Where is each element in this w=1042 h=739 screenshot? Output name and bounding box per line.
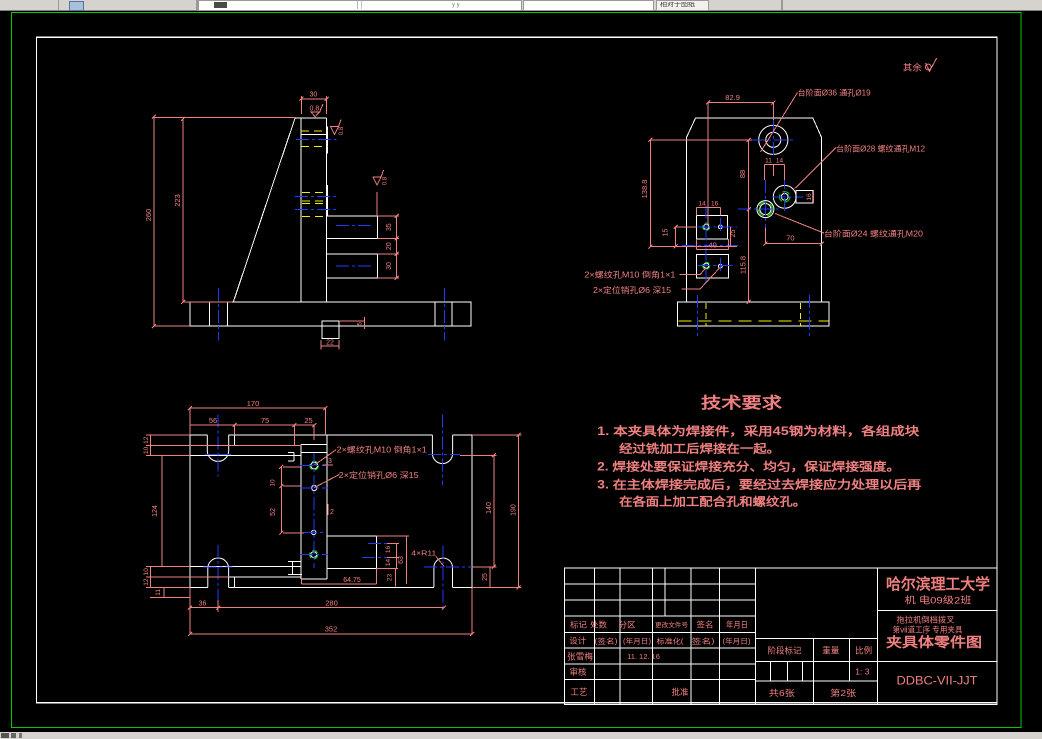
svg-text:5: 5 [358, 321, 364, 325]
svg-text:(年月日): (年月日) [623, 636, 651, 645]
svg-text:夹具体零件图: 夹具体零件图 [886, 634, 982, 650]
svg-text:工艺: 工艺 [571, 687, 588, 697]
svg-text:第2张: 第2张 [830, 688, 857, 698]
svg-text:82.9: 82.9 [725, 93, 740, 102]
svg-text:14: 14 [776, 158, 784, 165]
svg-text:0.8: 0.8 [339, 126, 345, 135]
svg-text:40: 40 [709, 241, 717, 250]
svg-text:拖拉机倒档拨叉: 拖拉机倒档拨叉 [897, 614, 955, 624]
svg-text:280: 280 [325, 599, 338, 608]
svg-text:64.75: 64.75 [343, 577, 361, 584]
svg-text:23: 23 [387, 574, 394, 582]
svg-text:签名): 签名) [692, 636, 715, 645]
svg-text:2×定位销孔Ø6 深15: 2×定位销孔Ø6 深15 [339, 470, 420, 480]
svg-text:70: 70 [786, 234, 794, 243]
svg-text:11. 12. 16: 11. 12. 16 [627, 652, 660, 661]
svg-text:年月日: 年月日 [726, 620, 748, 630]
svg-text:10: 10 [143, 446, 150, 454]
svg-text:260: 260 [144, 209, 153, 222]
svg-text:分区: 分区 [619, 621, 636, 630]
svg-text:190: 190 [511, 504, 518, 516]
svg-text:11: 11 [155, 589, 162, 596]
svg-text:56: 56 [209, 416, 217, 425]
svg-text:机 电09级2班: 机 电09级2班 [905, 595, 973, 607]
svg-text:12: 12 [143, 578, 150, 586]
svg-text:签名: 签名 [697, 620, 714, 630]
svg-text:第ⅶ道工序 专用夹具: 第ⅶ道工序 专用夹具 [893, 624, 963, 634]
svg-text:25: 25 [304, 416, 312, 425]
svg-text:处数: 处数 [590, 620, 607, 630]
svg-text:2: 2 [330, 509, 334, 516]
svg-text:经过铣加工后焊接在一起。: 经过铣加工后焊接在一起。 [619, 442, 780, 456]
svg-text:22: 22 [326, 340, 334, 347]
svg-text:115.8: 115.8 [739, 256, 748, 274]
svg-text:352: 352 [325, 625, 338, 634]
svg-text:批准: 批准 [672, 687, 689, 697]
svg-text:1: 3: 1: 3 [855, 666, 869, 676]
svg-text:共6张: 共6张 [769, 688, 796, 698]
svg-text:20: 20 [386, 242, 393, 250]
svg-text:223: 223 [173, 194, 182, 207]
svg-text:(签名): (签名) [595, 636, 618, 645]
svg-text:170: 170 [247, 399, 260, 408]
svg-text:设计: 设计 [569, 636, 586, 646]
svg-text:技术要求: 技术要求 [701, 393, 783, 412]
svg-text:4×R11: 4×R11 [411, 549, 436, 558]
svg-text:15: 15 [663, 229, 670, 237]
svg-text:(年月日): (年月日) [723, 636, 751, 645]
svg-text:比例: 比例 [855, 646, 872, 656]
svg-text:25: 25 [730, 230, 737, 238]
svg-text:2×定位销孔Ø6 深15: 2×定位销孔Ø6 深15 [593, 285, 672, 295]
svg-text:台阶面Ø36 通孔Ø19: 台阶面Ø36 通孔Ø19 [798, 88, 872, 98]
svg-text:哈尔滨理工大学: 哈尔滨理工大学 [886, 575, 990, 593]
svg-text:台阶面Ø28 螺纹通孔M12: 台阶面Ø28 螺纹通孔M12 [836, 144, 926, 154]
svg-text:标记: 标记 [570, 620, 587, 630]
svg-text:36: 36 [199, 601, 207, 608]
svg-text:30: 30 [310, 92, 318, 99]
svg-text:3. 在主体焊接完成后，要经过去焊接应力处理以后再: 3. 在主体焊接完成后，要经过去焊接应力处理以后再 [597, 477, 922, 491]
svg-text:35: 35 [386, 223, 393, 231]
svg-text:重量: 重量 [822, 646, 839, 656]
svg-text:16: 16 [385, 546, 392, 554]
svg-text:52: 52 [270, 508, 277, 516]
svg-text:14: 14 [698, 201, 706, 208]
svg-text:10: 10 [270, 479, 277, 487]
svg-text:30: 30 [386, 262, 393, 270]
svg-text:140: 140 [486, 502, 493, 514]
svg-text:10: 10 [143, 568, 150, 576]
svg-text:124: 124 [152, 505, 159, 517]
svg-text:2×螺纹孔M10 倒角1×1: 2×螺纹孔M10 倒角1×1 [584, 270, 676, 280]
svg-text:3: 3 [328, 458, 332, 465]
svg-text:DDBC-VII-JJT: DDBC-VII-JJT [897, 674, 979, 688]
svg-text:标准化(: 标准化( [657, 636, 685, 645]
svg-text:审核: 审核 [570, 667, 587, 677]
svg-text:138.8: 138.8 [640, 180, 649, 199]
svg-text:11: 11 [765, 158, 772, 165]
svg-text:12: 12 [143, 436, 150, 444]
svg-text:阶段标记: 阶段标记 [768, 646, 802, 656]
svg-text:其余: 其余 [903, 63, 923, 73]
svg-text:2×螺纹孔M10 倒角1×1: 2×螺纹孔M10 倒角1×1 [337, 445, 428, 455]
svg-text:台阶面Ø24 螺纹通孔M20: 台阶面Ø24 螺纹通孔M20 [824, 229, 924, 239]
svg-text:88: 88 [738, 170, 747, 178]
svg-text:张雪梅: 张雪梅 [567, 652, 593, 662]
svg-text:63: 63 [398, 556, 405, 564]
svg-text:0.8: 0.8 [383, 176, 389, 185]
svg-text:16: 16 [806, 193, 813, 201]
svg-text:2. 焊接处要保证焊接充分、均匀，保证焊接强度。: 2. 焊接处要保证焊接充分、均匀，保证焊接强度。 [597, 460, 900, 474]
svg-text:14: 14 [385, 559, 392, 567]
svg-text:1. 本夹具体为焊接件，采用45钢为材料，各组成块: 1. 本夹具体为焊接件，采用45钢为材料，各组成块 [597, 424, 920, 438]
svg-text:在各面上加工配合孔和螺纹孔。: 在各面上加工配合孔和螺纹孔。 [619, 495, 806, 509]
svg-text:更改文件号: 更改文件号 [655, 620, 689, 629]
svg-text:75: 75 [261, 416, 269, 425]
svg-text:25: 25 [482, 573, 489, 581]
svg-text:16: 16 [711, 201, 719, 208]
